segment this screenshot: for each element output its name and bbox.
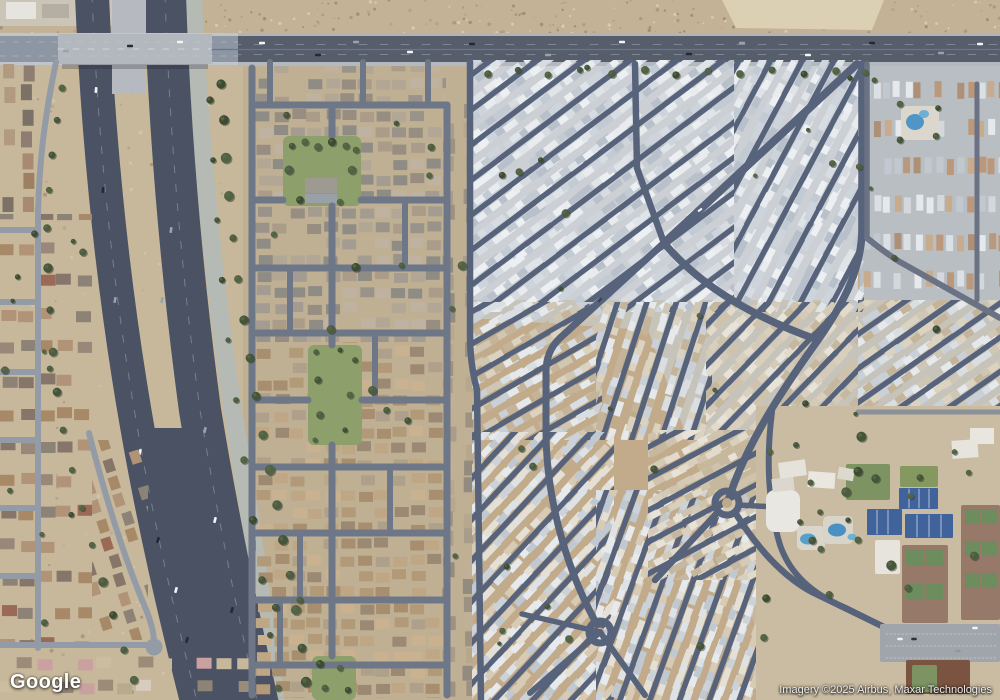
imagery-attribution: Imagery ©2025 Airbus, Maxar Technologies <box>779 684 992 696</box>
satellite-map-canvas[interactable] <box>0 0 1000 700</box>
google-logo[interactable]: Google <box>10 671 81 694</box>
map-viewport: Google Imagery ©2025 Airbus, Maxar Techn… <box>0 0 1000 700</box>
